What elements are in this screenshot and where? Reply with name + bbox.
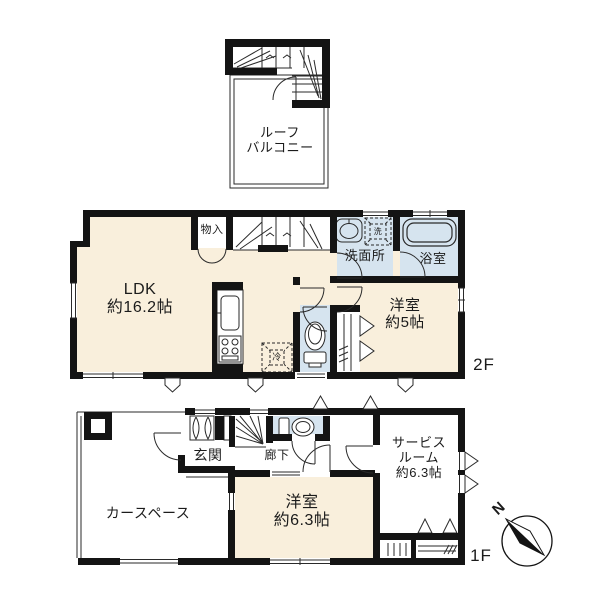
stairs-1f (235, 416, 266, 447)
floor-plan: ルーフバルコニー 物入 LDK約16.2帖 洗 洗面所 浴室 洋室約5帖 冷 2… (0, 0, 600, 600)
label-entrance: 玄関 (194, 447, 223, 463)
compass (502, 516, 552, 566)
kitchen-counter (212, 282, 243, 372)
label-room63: 洋室約6.3帖 (274, 494, 331, 531)
label-hallway: 廊下 (264, 449, 289, 463)
label-ldk: LDK約16.2帖 (107, 281, 173, 318)
label-service-room: サービスルーム約6.3帖 (392, 436, 446, 481)
label-fridge: 冷 (272, 352, 282, 362)
vent-icons-2f (165, 378, 413, 392)
label-storage: 物入 (201, 224, 224, 237)
roof-balcony-section (225, 39, 330, 188)
label-washer: 洗 (374, 227, 383, 236)
closet-2f (337, 312, 360, 372)
entrance-closet (190, 416, 231, 440)
label-roof-balcony: ルーフバルコニー (246, 126, 313, 156)
pillar (84, 412, 112, 440)
label-bath: 浴室 (419, 252, 446, 267)
label-carspace: カースペース (106, 505, 191, 521)
vent-icons-1f (313, 396, 378, 409)
label-room5: 洋室約5帖 (385, 297, 425, 332)
awning-window-icons (465, 452, 478, 493)
label-washroom: 洗面所 (345, 249, 386, 264)
toilet-icon-2f (304, 322, 326, 367)
label-floor1: 1F (470, 546, 492, 566)
label-floor2: 2F (473, 355, 495, 375)
